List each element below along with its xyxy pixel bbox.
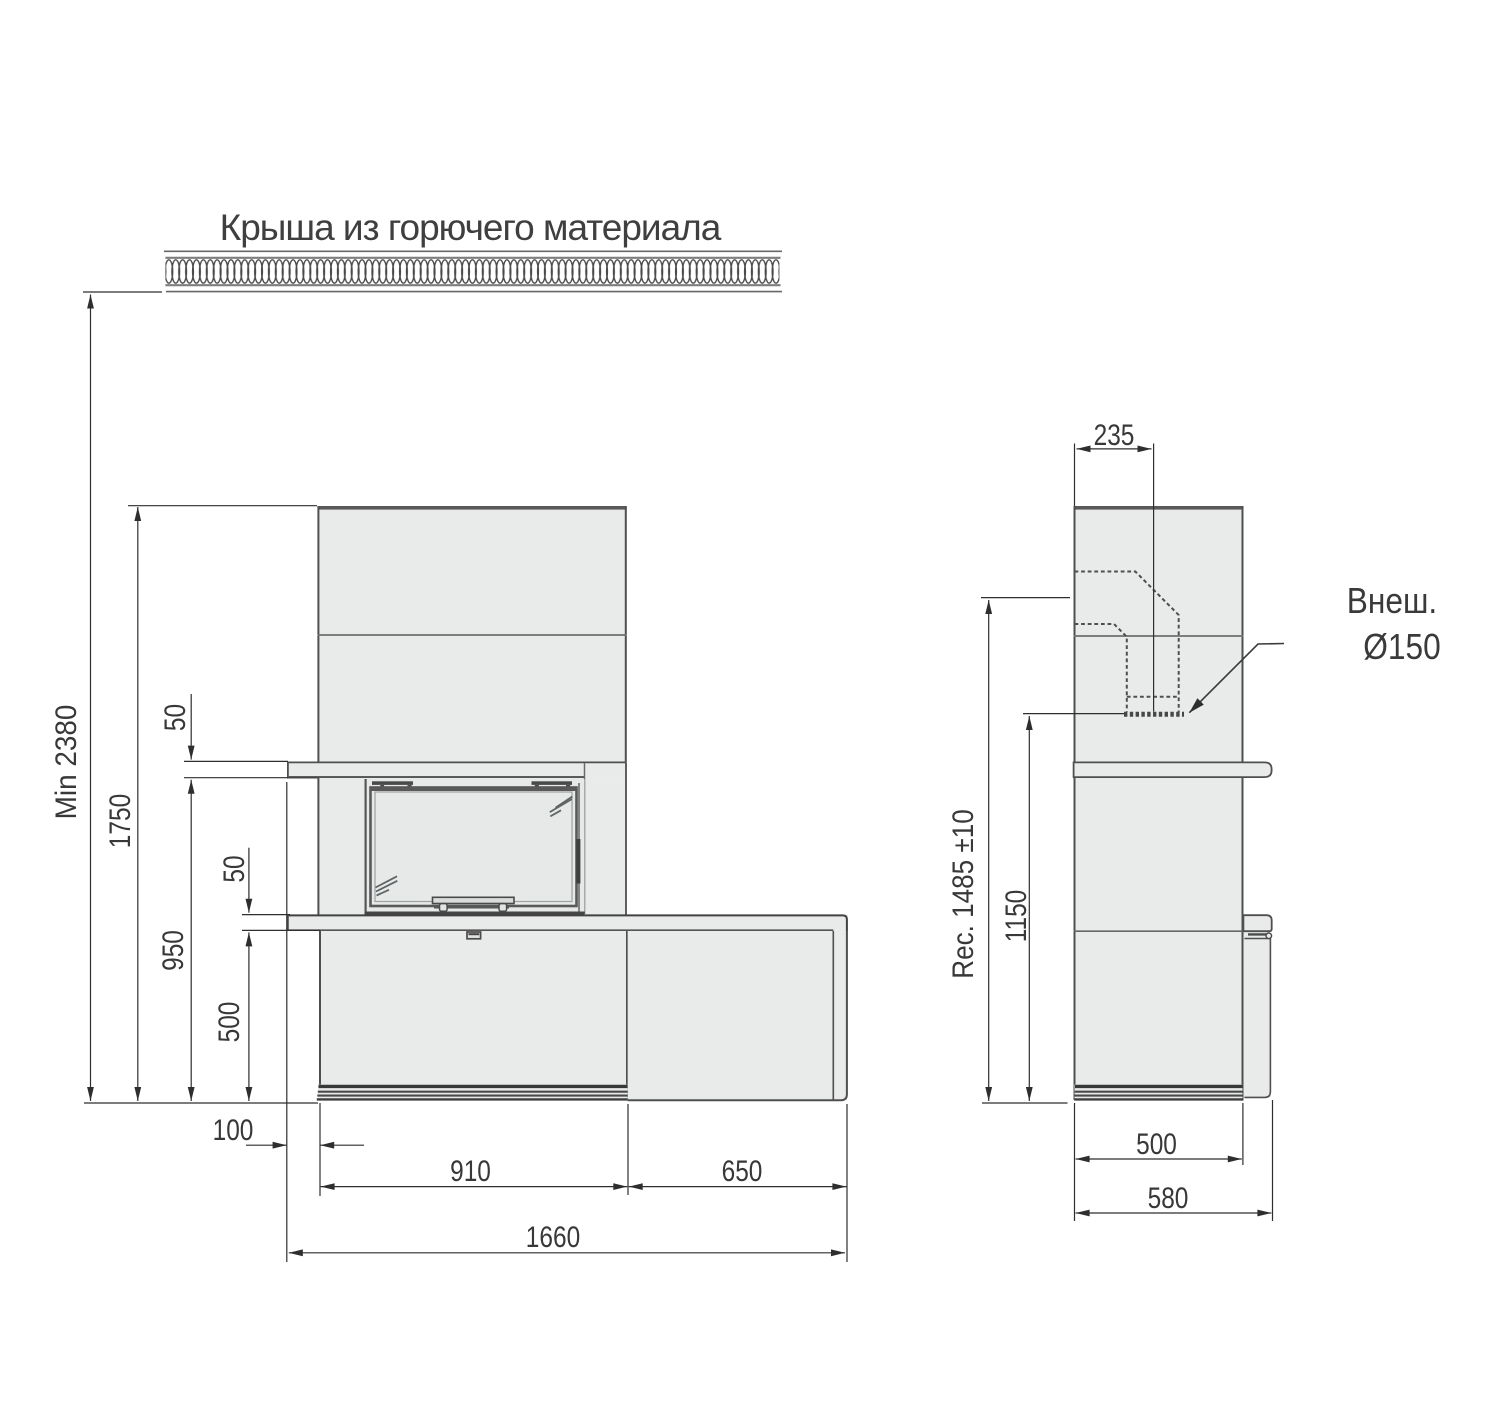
svg-text:580: 580 [1148, 1181, 1189, 1215]
svg-text:950: 950 [156, 930, 190, 971]
svg-text:500: 500 [212, 1002, 246, 1043]
svg-text:Rec. 1485 ±10: Rec. 1485 ±10 [946, 809, 979, 979]
svg-text:650: 650 [722, 1154, 763, 1188]
svg-text:1750: 1750 [103, 794, 137, 848]
svg-text:1150: 1150 [999, 890, 1033, 943]
svg-text:Min 2380: Min 2380 [50, 705, 83, 820]
svg-text:Крыша из горючего материала: Крыша из горючего материала [220, 207, 722, 248]
svg-text:50: 50 [158, 704, 192, 731]
svg-text:910: 910 [450, 1154, 491, 1188]
svg-text:50: 50 [217, 855, 251, 882]
svg-text:Внеш.: Внеш. [1347, 581, 1437, 621]
svg-text:235: 235 [1094, 418, 1135, 452]
svg-text:100: 100 [213, 1113, 254, 1147]
svg-text:1660: 1660 [526, 1220, 580, 1254]
svg-text:500: 500 [1136, 1127, 1177, 1161]
svg-text:Ø150: Ø150 [1363, 627, 1440, 667]
